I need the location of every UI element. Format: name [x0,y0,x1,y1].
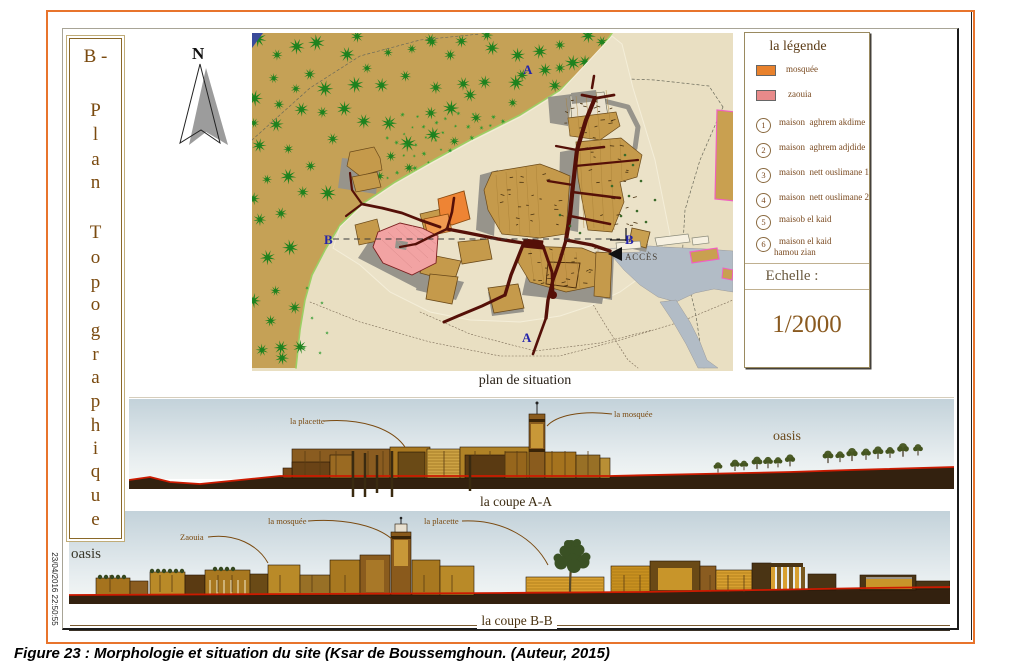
svg-text:oasis: oasis [71,546,101,562]
svg-text:ACCÈS: ACCÈS [625,252,658,262]
svg-text:oasis: oasis [773,429,801,444]
svg-text:A: A [523,62,533,77]
svg-text:la placette: la placette [424,516,459,526]
svg-text:la placette: la placette [290,416,325,426]
svg-text:A: A [522,330,532,345]
svg-text:B: B [625,232,634,247]
svg-text:la mosquée: la mosquée [268,516,307,526]
svg-text:la mosquée: la mosquée [614,409,653,419]
svg-text:B: B [324,232,333,247]
svg-text:Zaouia: Zaouia [180,532,204,542]
svg-text:N: N [192,44,205,63]
